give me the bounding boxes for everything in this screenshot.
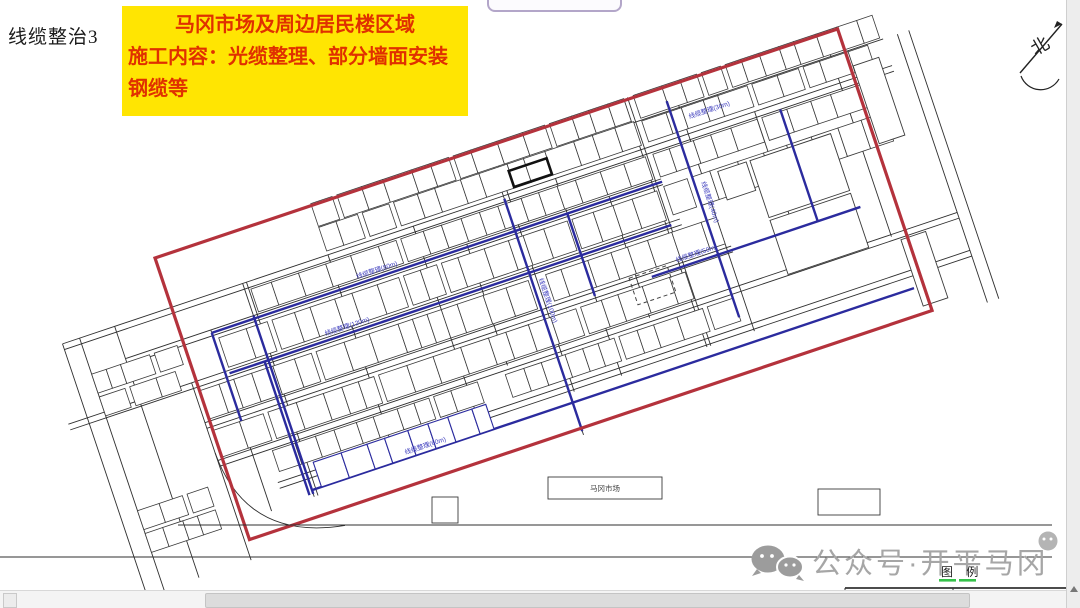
legend-title: 图 例 (941, 565, 983, 579)
building (432, 497, 458, 523)
building (154, 346, 183, 373)
building-label: 马冈市场 (590, 483, 620, 493)
horizontal-scrollbar[interactable] (0, 590, 1066, 608)
building (99, 388, 131, 416)
building (818, 489, 880, 515)
underline (959, 579, 976, 582)
construction-banner: 马冈市场及周边居民楼区域 施工内容：光缆整理、部分墙面安装 钢缆等 (122, 6, 468, 116)
underline (939, 579, 956, 582)
building (664, 179, 697, 215)
doc-label: 线缆整治3 (8, 22, 99, 49)
top-toolbar-button[interactable] (487, 0, 622, 12)
horizontal-scrollbar-thumb[interactable] (205, 593, 970, 608)
scrollbar-left-button[interactable] (3, 593, 17, 608)
building (707, 298, 741, 329)
north-label: 北 (1027, 33, 1053, 59)
watermark-face-eye (1043, 538, 1046, 541)
wechat-watermark: 公众号·开平马冈 (752, 532, 1058, 582)
wechat-icon (752, 546, 805, 582)
bottom-buildings (432, 477, 880, 523)
watermark-text: 公众号·开平马冈 (812, 548, 1049, 580)
screenshot-root: 线缆整理(30m) 线缆整理(80m) 线缆整理(120m) 线缆整理(50m)… (0, 0, 1080, 608)
building (187, 487, 214, 513)
banner-line1: 马冈市场及周边居民楼区域 (128, 9, 462, 41)
watermark-face-icon (1039, 532, 1058, 551)
right-panel-edge (1066, 0, 1080, 608)
scroll-up-arrow[interactable] (1070, 586, 1078, 592)
north-arrow-icon: 北 (1020, 21, 1062, 90)
banner-line2: 施工内容：光缆整理、部分墙面安装 (128, 41, 462, 73)
watermark-face-eye (1050, 538, 1053, 541)
banner-line3: 钢缆等 (128, 73, 462, 105)
